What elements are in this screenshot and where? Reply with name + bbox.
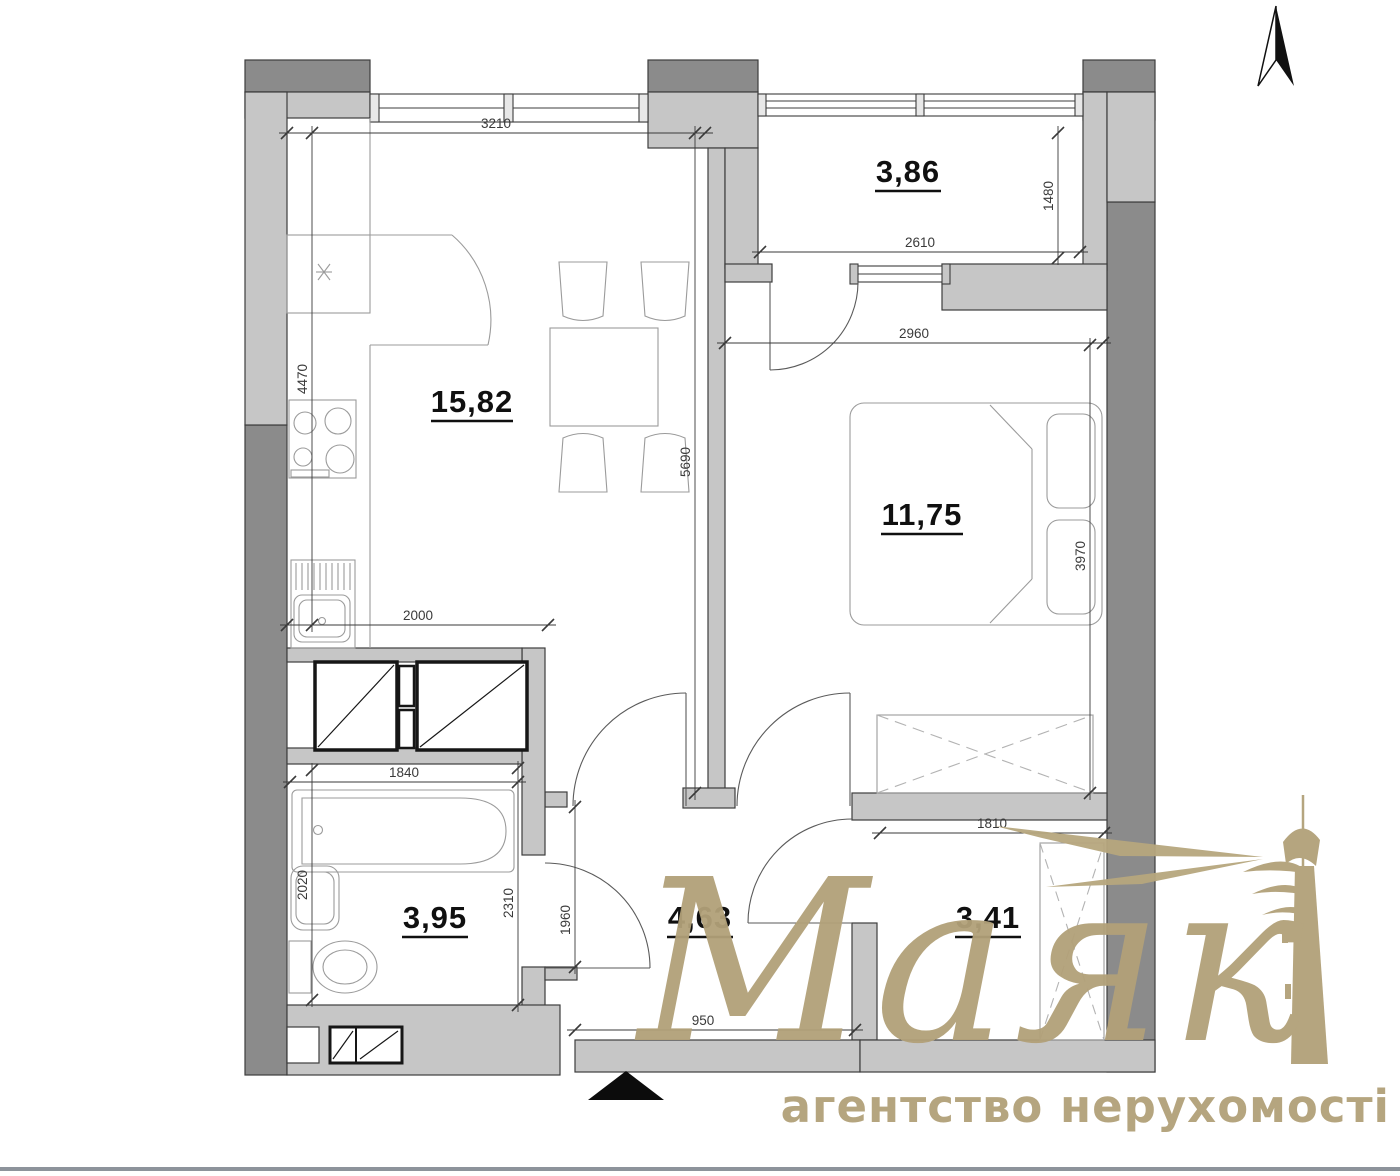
bathtub (292, 790, 514, 872)
dim-balcony-width: 2610 (905, 235, 935, 250)
toilet (289, 941, 377, 993)
vent-shaft (330, 1027, 402, 1063)
stove (289, 400, 356, 478)
dim-kitchen: 2000 (403, 608, 433, 623)
dim-bath-width: 1840 (389, 765, 419, 780)
logo: Маяк агентство нерухомості (634, 795, 1390, 1133)
chair (641, 262, 689, 321)
corner-cabinet (370, 235, 491, 345)
bedroom-door (737, 693, 850, 806)
dim-balcony-depth: 1480 (1041, 181, 1056, 211)
dining-table (550, 328, 658, 426)
bedroom-wardrobe (877, 715, 1093, 793)
north-arrow-icon (1258, 6, 1294, 86)
dim-living-top: 3210 (481, 116, 511, 131)
kitchen-fixtures (287, 118, 491, 648)
dim-living-right: 5690 (678, 447, 693, 477)
floor-plan-page: 3210 2610 2960 2000 1840 1810 950 1480 4… (0, 0, 1400, 1176)
sliding-closet (315, 662, 527, 750)
dim-bedroom-depth: 3970 (1073, 541, 1088, 571)
balcony-glazing (758, 94, 1083, 116)
living-door (573, 693, 686, 806)
dim-bath-door: 1960 (558, 905, 573, 935)
chair (559, 434, 607, 493)
fridge (287, 235, 370, 313)
logo-brand: Маяк (634, 832, 1310, 1094)
balcony-door (770, 282, 858, 370)
logo-tagline: агентство нерухомості (781, 1080, 1390, 1133)
dim-bedroom-width: 2960 (899, 326, 929, 341)
bedroom-balcony-window (850, 264, 950, 284)
dim-bath-left: 2020 (295, 870, 310, 900)
bottom-border (0, 1167, 1400, 1171)
sink (291, 560, 355, 648)
area-living: 15,82 (431, 384, 514, 419)
area-bathroom: 3,95 (403, 900, 467, 935)
bathroom-fixtures (289, 790, 514, 993)
dining-set (550, 262, 689, 492)
area-bedroom: 11,75 (882, 497, 963, 532)
wall-notch (287, 1027, 319, 1063)
dim-living-left: 4470 (295, 364, 310, 394)
area-balcony: 3,86 (876, 154, 940, 189)
chair (559, 262, 607, 321)
dim-storage-width: 1810 (977, 816, 1007, 831)
dim-bath-right: 2310 (501, 888, 516, 918)
